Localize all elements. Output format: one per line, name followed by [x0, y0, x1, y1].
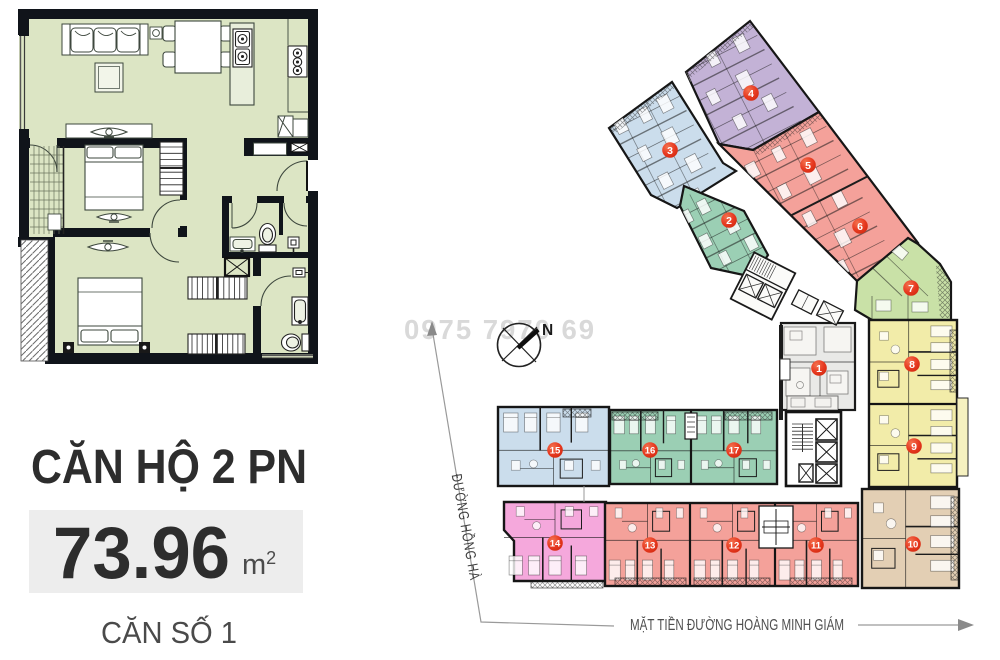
svg-text:10: 10	[908, 539, 919, 550]
svg-text:2: 2	[726, 215, 732, 227]
svg-text:17: 17	[729, 445, 740, 456]
svg-text:15: 15	[550, 445, 561, 456]
svg-text:5: 5	[805, 160, 811, 172]
svg-text:N: N	[542, 322, 553, 339]
svg-text:CĂN SỐ 1: CĂN SỐ 1	[101, 614, 237, 650]
svg-text:3: 3	[667, 145, 673, 157]
svg-text:6: 6	[857, 221, 863, 233]
svg-text:7: 7	[908, 283, 914, 295]
svg-text:8: 8	[909, 359, 915, 371]
svg-text:12: 12	[729, 540, 740, 551]
svg-text:MẶT TIỀN ĐƯỜNG HOÀNG MINH GIÁM: MẶT TIỀN ĐƯỜNG HOÀNG MINH GIÁM	[630, 615, 844, 634]
svg-text:16: 16	[645, 445, 656, 456]
svg-text:11: 11	[811, 540, 822, 551]
svg-text:13: 13	[645, 540, 656, 551]
svg-text:14: 14	[550, 538, 561, 549]
svg-text:73.96: 73.96	[53, 513, 230, 594]
svg-text:9: 9	[911, 441, 917, 453]
svg-text:1: 1	[816, 363, 822, 375]
svg-text:CĂN HỘ 2 PN: CĂN HỘ 2 PN	[31, 439, 307, 494]
svg-text:4: 4	[748, 88, 754, 100]
